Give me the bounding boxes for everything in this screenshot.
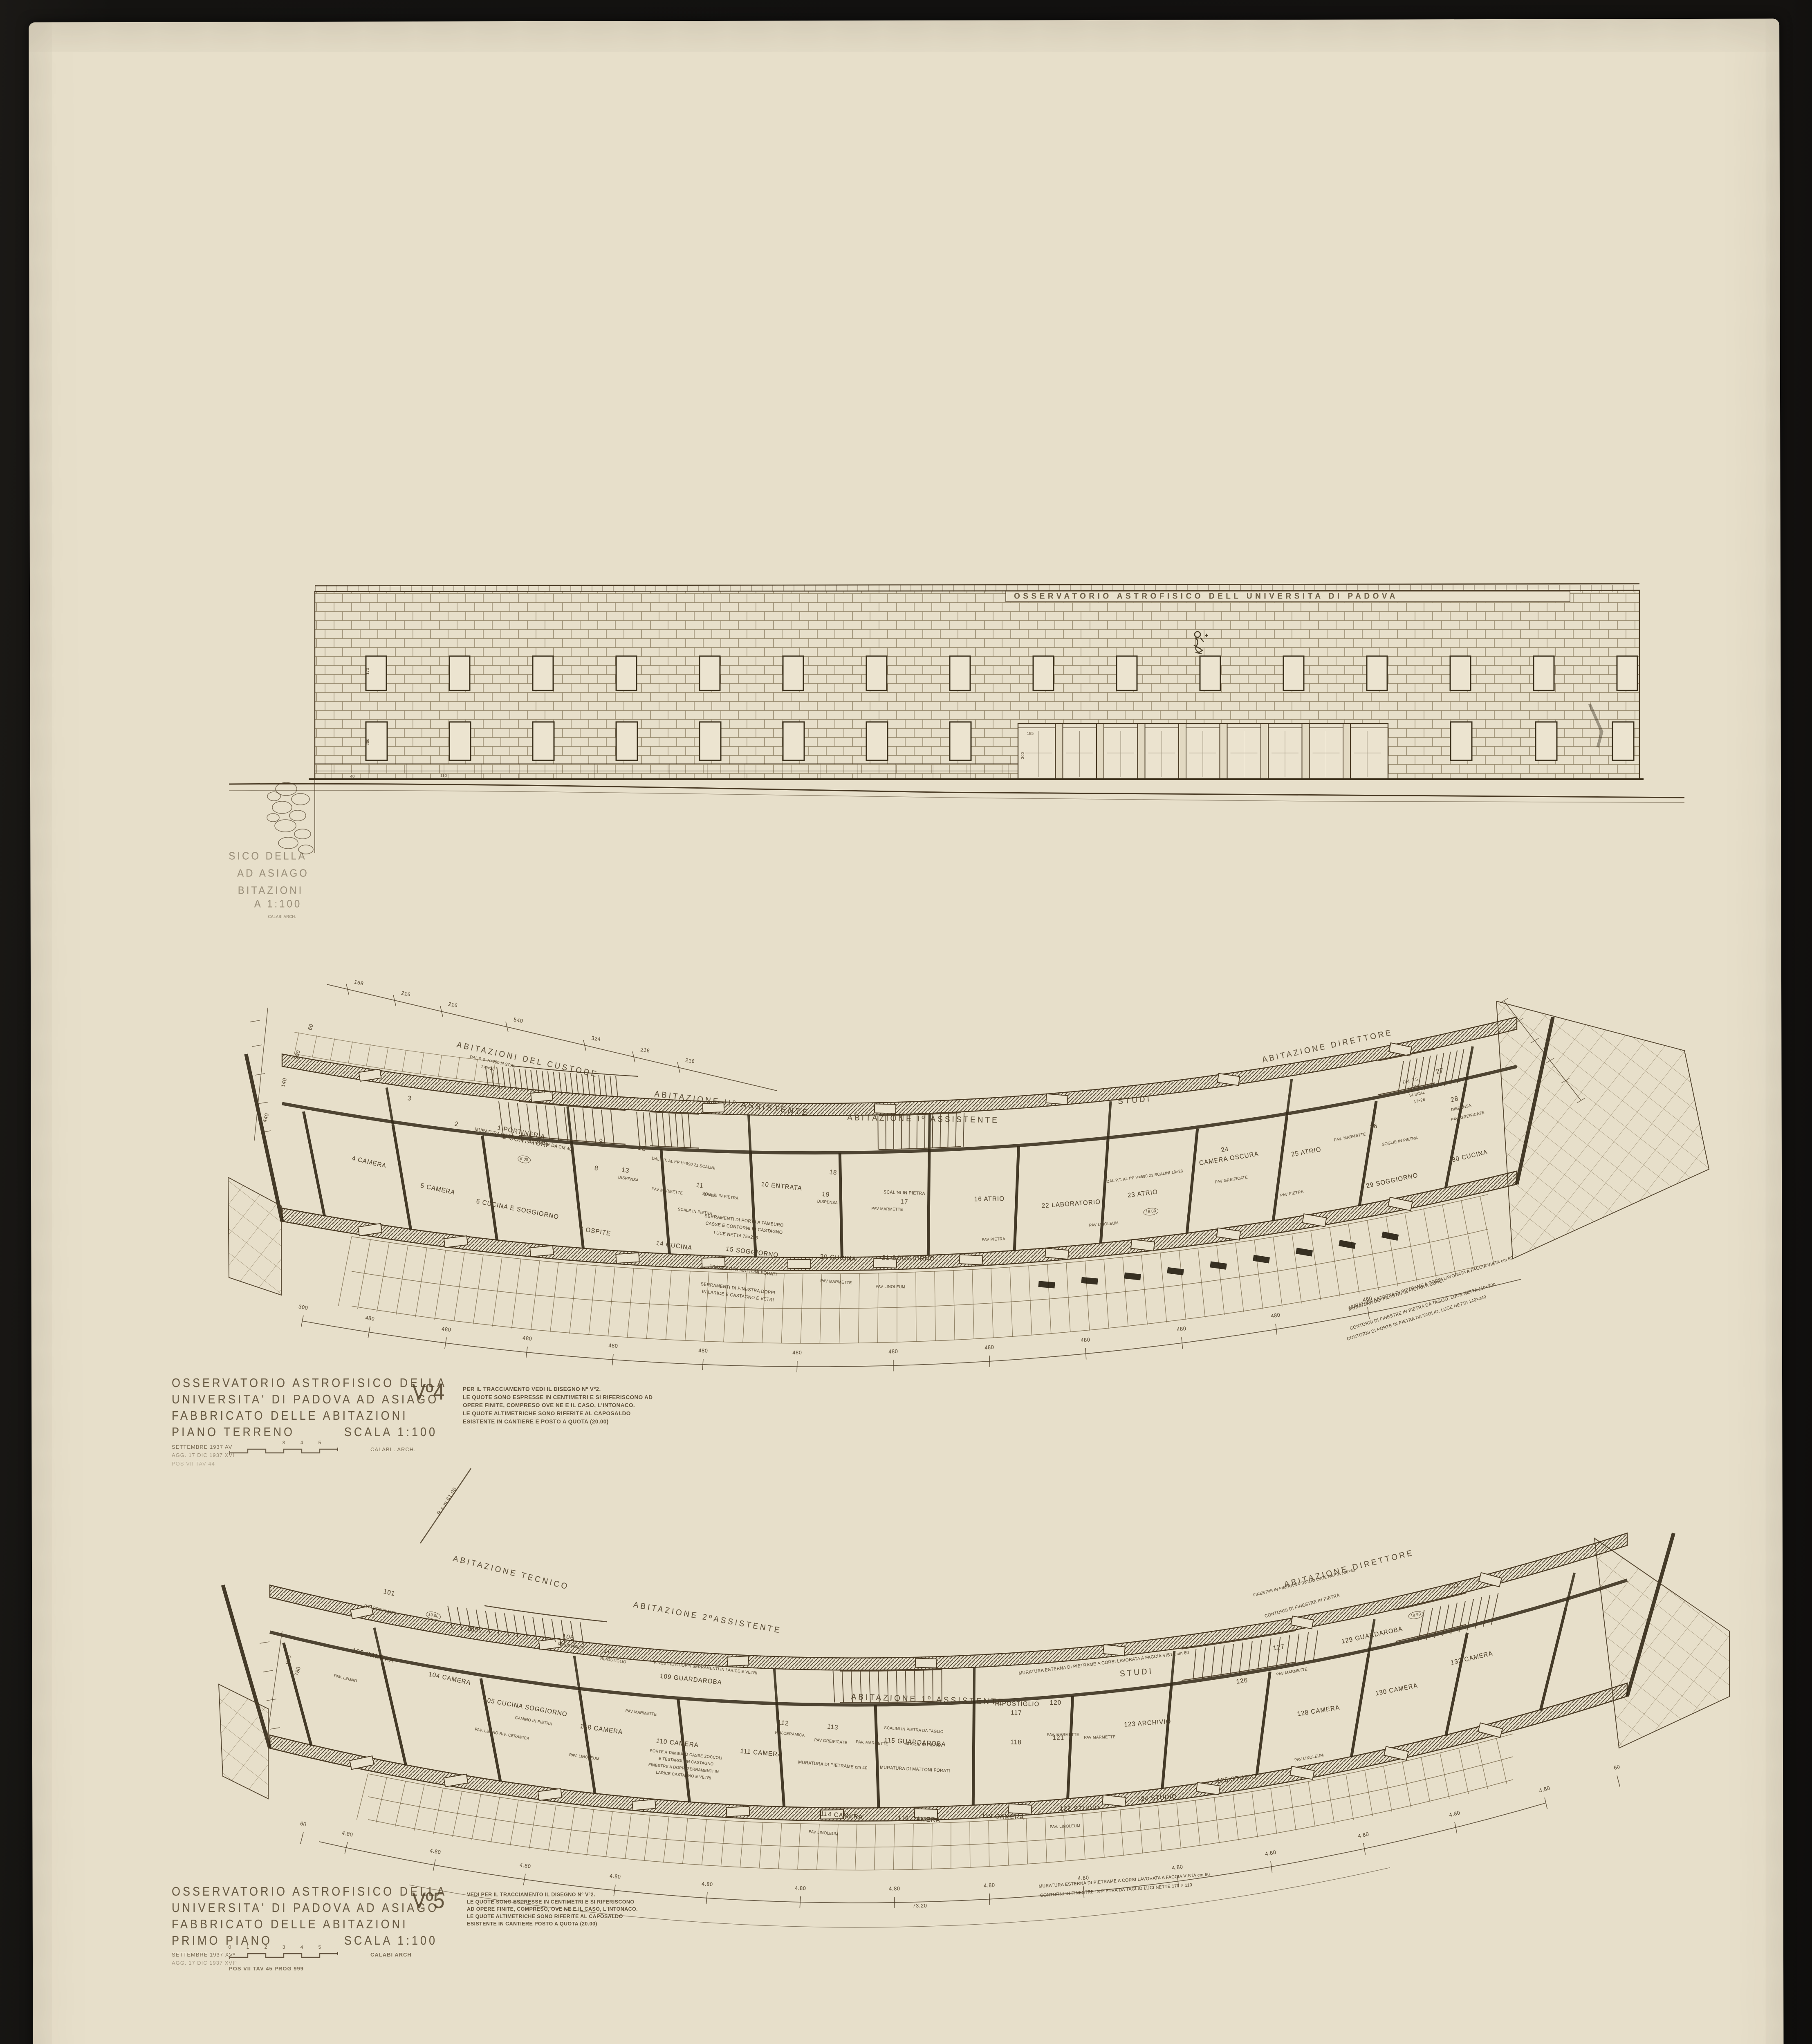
ref-line: POS VII TAV 44 xyxy=(172,1461,215,1467)
scale-bar-number: 1 xyxy=(247,1944,249,1950)
drawing-linework xyxy=(0,0,1812,2044)
floor-name: PRIMO PIANO xyxy=(172,1934,272,1948)
date-line: SETTEMBRE 1937 AV xyxy=(172,1444,232,1450)
scale-bar-number: 4 xyxy=(301,1944,303,1950)
scale-text: SCALA 1:100 xyxy=(344,1934,437,1948)
general-notes: VEDI PER IL TRACCIAMENTO IL DISEGNO Nº V… xyxy=(467,1891,638,1927)
drawing-number: Vº4 xyxy=(412,1379,444,1405)
scale-bar-number: 0 xyxy=(229,1944,231,1950)
scale-bar-number: 5 xyxy=(318,1440,321,1446)
scale-bar-number: 5 xyxy=(318,1944,321,1950)
screenshot-root: { "colors":{"mount_black":"#131211","pap… xyxy=(0,0,1812,2044)
date-line: AGG. 17 DIC 1937 XVI xyxy=(172,1452,235,1458)
general-notes: PER IL TRACCIAMENTO VEDI IL DISEGNO Nº V… xyxy=(463,1385,653,1426)
elevation-drawing xyxy=(229,584,1684,854)
title-block-ground-floor: OSSERVATORIO ASTROFISICO DELLA UNIVERSIT… xyxy=(172,1377,662,1471)
architect-name: CALABI . ARCH. xyxy=(370,1446,416,1452)
date-line: SETTEMBRE 1937 XVº xyxy=(172,1952,235,1958)
scale-bar-number: 4 xyxy=(301,1440,303,1446)
graphic-scale-bar: 012345 xyxy=(229,1951,339,1960)
architect-name: CALABI ARCH xyxy=(370,1952,412,1958)
scale-text: SCALA 1:100 xyxy=(344,1425,437,1439)
title-line: FABBRICATO DELLE ABITAZIONI xyxy=(172,1409,408,1423)
scale-bar-number: 3 xyxy=(283,1440,285,1446)
date-line: AGG. 17 DIC 1937 XVIº xyxy=(172,1960,237,1966)
floor-name: PIANO TERRENO xyxy=(172,1425,295,1439)
drawing-number: Vº5 xyxy=(412,1887,444,1914)
title-line: FABBRICATO DELLE ABITAZIONI xyxy=(172,1917,408,1932)
title-line: UNIVERSITA' DI PADOVA AD ASIAGO xyxy=(172,1901,439,1915)
title-block-first-floor: OSSERVATORIO ASTROFISICO DELLA UNIVERSIT… xyxy=(172,1885,662,1979)
graphic-scale-bar: 345 xyxy=(229,1446,339,1455)
scale-bar-number: 3 xyxy=(283,1944,285,1950)
title-line: UNIVERSITA' DI PADOVA AD ASIAGO xyxy=(172,1392,439,1407)
ref-line: POS VII TAV 45 PROG 999 xyxy=(229,1966,304,1972)
title-line: OSSERVATORIO ASTROFISICO DELLA xyxy=(172,1376,447,1390)
first-floor-plan-drawing xyxy=(219,1533,1729,1927)
title-line: OSSERVATORIO ASTROFISICO DELLA xyxy=(172,1885,447,1899)
scale-bar-number: 2 xyxy=(265,1944,267,1950)
